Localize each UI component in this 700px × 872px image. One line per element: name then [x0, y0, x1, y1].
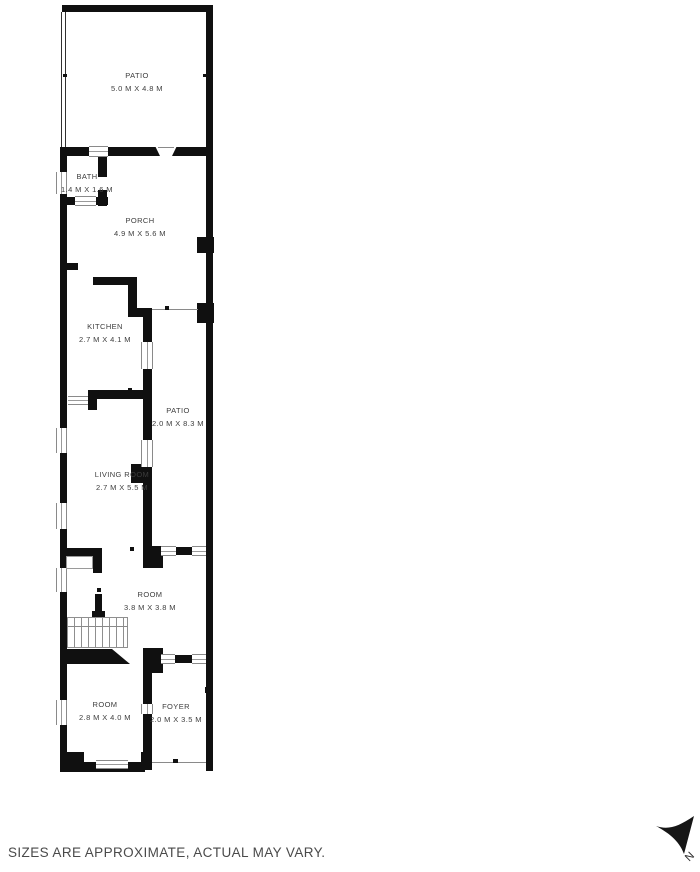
wall-line — [67, 626, 128, 627]
door-tick — [130, 547, 134, 551]
window — [56, 503, 67, 529]
room-name: KITCHEN — [79, 320, 131, 333]
room-dimensions: 1.4 M X 1.6 M — [61, 183, 113, 196]
door-tick — [97, 588, 101, 592]
wall-segment — [175, 655, 192, 663]
wall-segment — [176, 547, 192, 555]
door-tick — [173, 759, 178, 763]
wall-segment — [88, 396, 97, 410]
disclaimer-text: SIZES ARE APPROXIMATE, ACTUAL MAY VARY. — [8, 845, 325, 860]
door-tick — [165, 306, 169, 310]
wall-segment — [62, 147, 90, 156]
room-dimensions: 2.8 M X 4.0 M — [79, 711, 131, 724]
door-tick — [205, 687, 209, 693]
room-name: BATH — [61, 170, 113, 183]
floor-plan — [0, 0, 700, 872]
window — [56, 428, 67, 453]
window — [141, 342, 153, 369]
wall-diagonal — [112, 649, 130, 664]
room-label-foyer: FOYER 2.0 M X 3.5 M — [150, 700, 202, 726]
staircase — [67, 617, 128, 648]
room-name: PATIO — [111, 69, 163, 82]
room-label-living-room: LIVING ROOM 2.7 M X 5.5 M — [95, 468, 149, 494]
wall-segment — [197, 237, 214, 253]
window — [75, 196, 96, 206]
wall-segment — [197, 303, 214, 323]
room-name: ROOM — [124, 588, 176, 601]
room-label-patio-top: PATIO 5.0 M X 4.8 M — [111, 69, 163, 95]
room-name: ROOM — [79, 698, 131, 711]
wall-line — [152, 309, 198, 310]
room-name: PATIO — [152, 404, 204, 417]
door-tick — [63, 74, 67, 77]
wall-segment — [62, 5, 213, 12]
window — [89, 146, 108, 157]
window — [192, 546, 206, 556]
room-name: FOYER — [150, 700, 202, 713]
door-tick — [62, 233, 67, 238]
door-jamb — [152, 147, 160, 156]
wall-segment — [143, 546, 163, 568]
room-dimensions: 5.0 M X 4.8 M — [111, 82, 163, 95]
window — [56, 568, 67, 592]
room-label-kitchen: KITCHEN 2.7 M X 4.1 M — [79, 320, 131, 346]
floor-plan-page: PATIO 5.0 M X 4.8 M BATH 1.4 M X 1.6 M P… — [0, 0, 700, 872]
door-jamb — [172, 147, 180, 156]
room-label-porch: PORCH 4.9 M X 5.6 M — [114, 214, 166, 240]
wall-line — [158, 147, 174, 148]
room-label-room-bottom: ROOM 2.8 M X 4.0 M — [79, 698, 131, 724]
fixture — [66, 556, 93, 569]
patio-railing — [61, 12, 66, 147]
wall-segment — [60, 548, 95, 556]
window — [161, 546, 176, 556]
window — [96, 760, 128, 769]
window — [56, 700, 67, 725]
room-label-room-middle: ROOM 3.8 M X 3.8 M — [124, 588, 176, 614]
room-label-bath: BATH 1.4 M X 1.6 M — [61, 170, 113, 196]
wall-segment — [107, 147, 153, 156]
window — [161, 654, 175, 664]
wall-segment — [93, 548, 102, 573]
wall-segment — [60, 649, 112, 664]
compass: N — [652, 813, 700, 871]
door-tick — [62, 683, 66, 687]
door-tick — [109, 149, 112, 153]
room-dimensions: 4.9 M X 5.6 M — [114, 227, 166, 240]
wall-segment — [62, 263, 78, 270]
wall-segment — [206, 5, 213, 771]
room-label-patio-side: PATIO 2.0 M X 8.3 M — [152, 404, 204, 430]
wall-line — [152, 762, 206, 763]
window — [192, 654, 206, 664]
window — [68, 396, 88, 405]
door-tick — [128, 388, 132, 392]
room-dimensions: 2.7 M X 5.5 M — [95, 481, 149, 494]
wall-segment — [94, 197, 108, 205]
room-dimensions: 2.7 M X 4.1 M — [79, 333, 131, 346]
room-dimensions: 2.0 M X 3.5 M — [150, 713, 202, 726]
room-name: PORCH — [114, 214, 166, 227]
room-name: LIVING ROOM — [95, 468, 149, 481]
window — [141, 440, 153, 467]
wall-segment — [60, 147, 67, 772]
wall-segment — [180, 147, 207, 156]
room-dimensions: 2.0 M X 8.3 M — [152, 417, 204, 430]
door-tick — [203, 74, 207, 77]
room-dimensions: 3.8 M X 3.8 M — [124, 601, 176, 614]
